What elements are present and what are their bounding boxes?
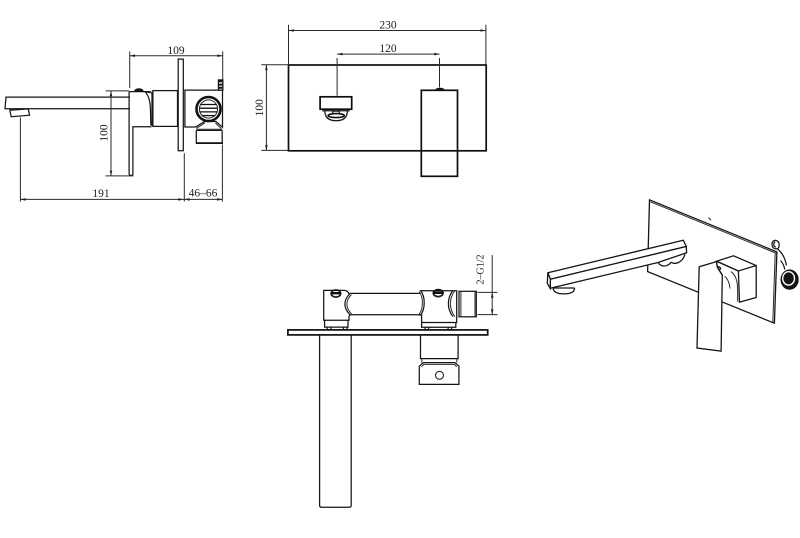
- svg-text:100: 100: [99, 124, 111, 142]
- svg-text:230: 230: [379, 20, 397, 32]
- svg-text:120: 120: [379, 43, 397, 55]
- svg-text:109: 109: [167, 45, 185, 57]
- svg-text:46–66: 46–66: [189, 188, 218, 200]
- svg-text:2–G1/2: 2–G1/2: [476, 255, 487, 285]
- svg-text:191: 191: [92, 188, 110, 200]
- svg-text:100: 100: [254, 99, 266, 117]
